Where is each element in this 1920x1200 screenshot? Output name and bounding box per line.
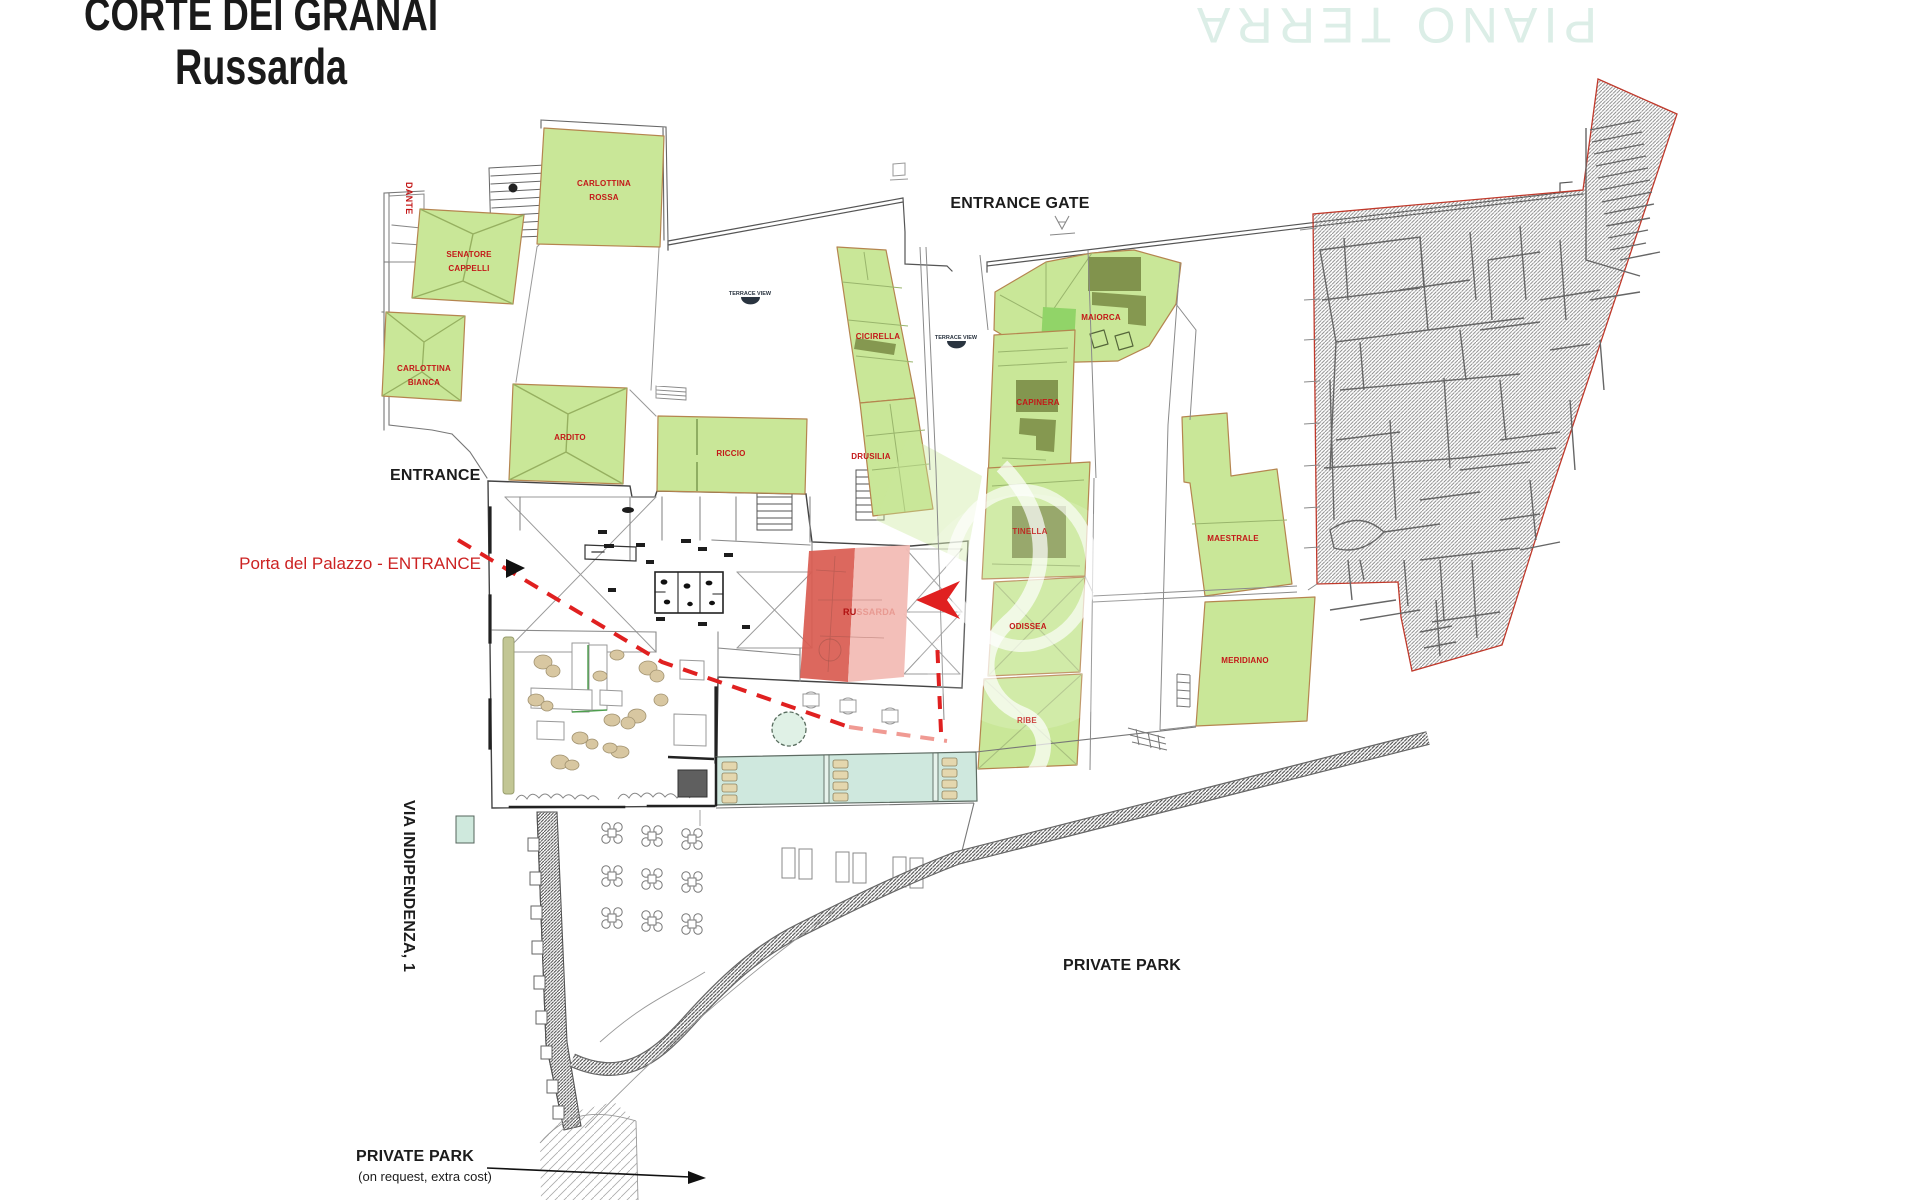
svg-text:RICCIO: RICCIO [716, 449, 745, 458]
svg-text:ARDITO: ARDITO [554, 433, 586, 442]
svg-text:ROSSA: ROSSA [589, 193, 618, 202]
svg-text:BIANCA: BIANCA [408, 378, 440, 387]
svg-text:PRIVATE PARK: PRIVATE PARK [356, 1148, 474, 1165]
svg-text:ODISSEA: ODISSEA [1009, 622, 1046, 631]
svg-text:DANTE: DANTE [404, 182, 414, 215]
svg-text:Russarda: Russarda [175, 39, 348, 95]
svg-text:CAPINERA: CAPINERA [1016, 398, 1059, 407]
svg-text:PIANO TERRA: PIANO TERRA [1187, 0, 1597, 53]
svg-text:ENTRANCE: ENTRANCE [390, 467, 481, 484]
svg-text:MAIORCA: MAIORCA [1081, 313, 1121, 322]
svg-text:Porta del Palazzo - ENTRANCE: Porta del Palazzo - ENTRANCE [239, 554, 481, 573]
svg-text:CORTE DEI GRANAI: CORTE DEI GRANAI [84, 0, 438, 40]
svg-text:PRIVATE PARK: PRIVATE PARK [1063, 957, 1181, 974]
svg-text:MAESTRALE: MAESTRALE [1207, 534, 1259, 543]
svg-text:RIBE: RIBE [1017, 716, 1037, 725]
svg-text:CAPPELLI: CAPPELLI [448, 264, 489, 273]
svg-text:VIA INDIPENDENZA, 1: VIA INDIPENDENZA, 1 [400, 800, 417, 972]
svg-text:CARLOTTINA: CARLOTTINA [397, 364, 451, 373]
svg-text:TERRACE VIEW: TERRACE VIEW [935, 335, 978, 341]
svg-text:ENTRANCE GATE: ENTRANCE GATE [950, 195, 1089, 212]
svg-text:(on request, extra cost): (on request, extra cost) [358, 1169, 492, 1184]
svg-text:SENATORE: SENATORE [446, 250, 492, 259]
svg-text:CICIRELLA: CICIRELLA [856, 332, 900, 341]
svg-text:DRUSILIA: DRUSILIA [851, 452, 890, 461]
svg-text:MERIDIANO: MERIDIANO [1221, 656, 1269, 665]
svg-text:TINELLA: TINELLA [1012, 527, 1047, 536]
svg-text:RUSSARDA: RUSSARDA [843, 607, 896, 617]
svg-text:CARLOTTINA: CARLOTTINA [577, 179, 631, 188]
svg-text:TERRACE VIEW: TERRACE VIEW [729, 291, 772, 297]
